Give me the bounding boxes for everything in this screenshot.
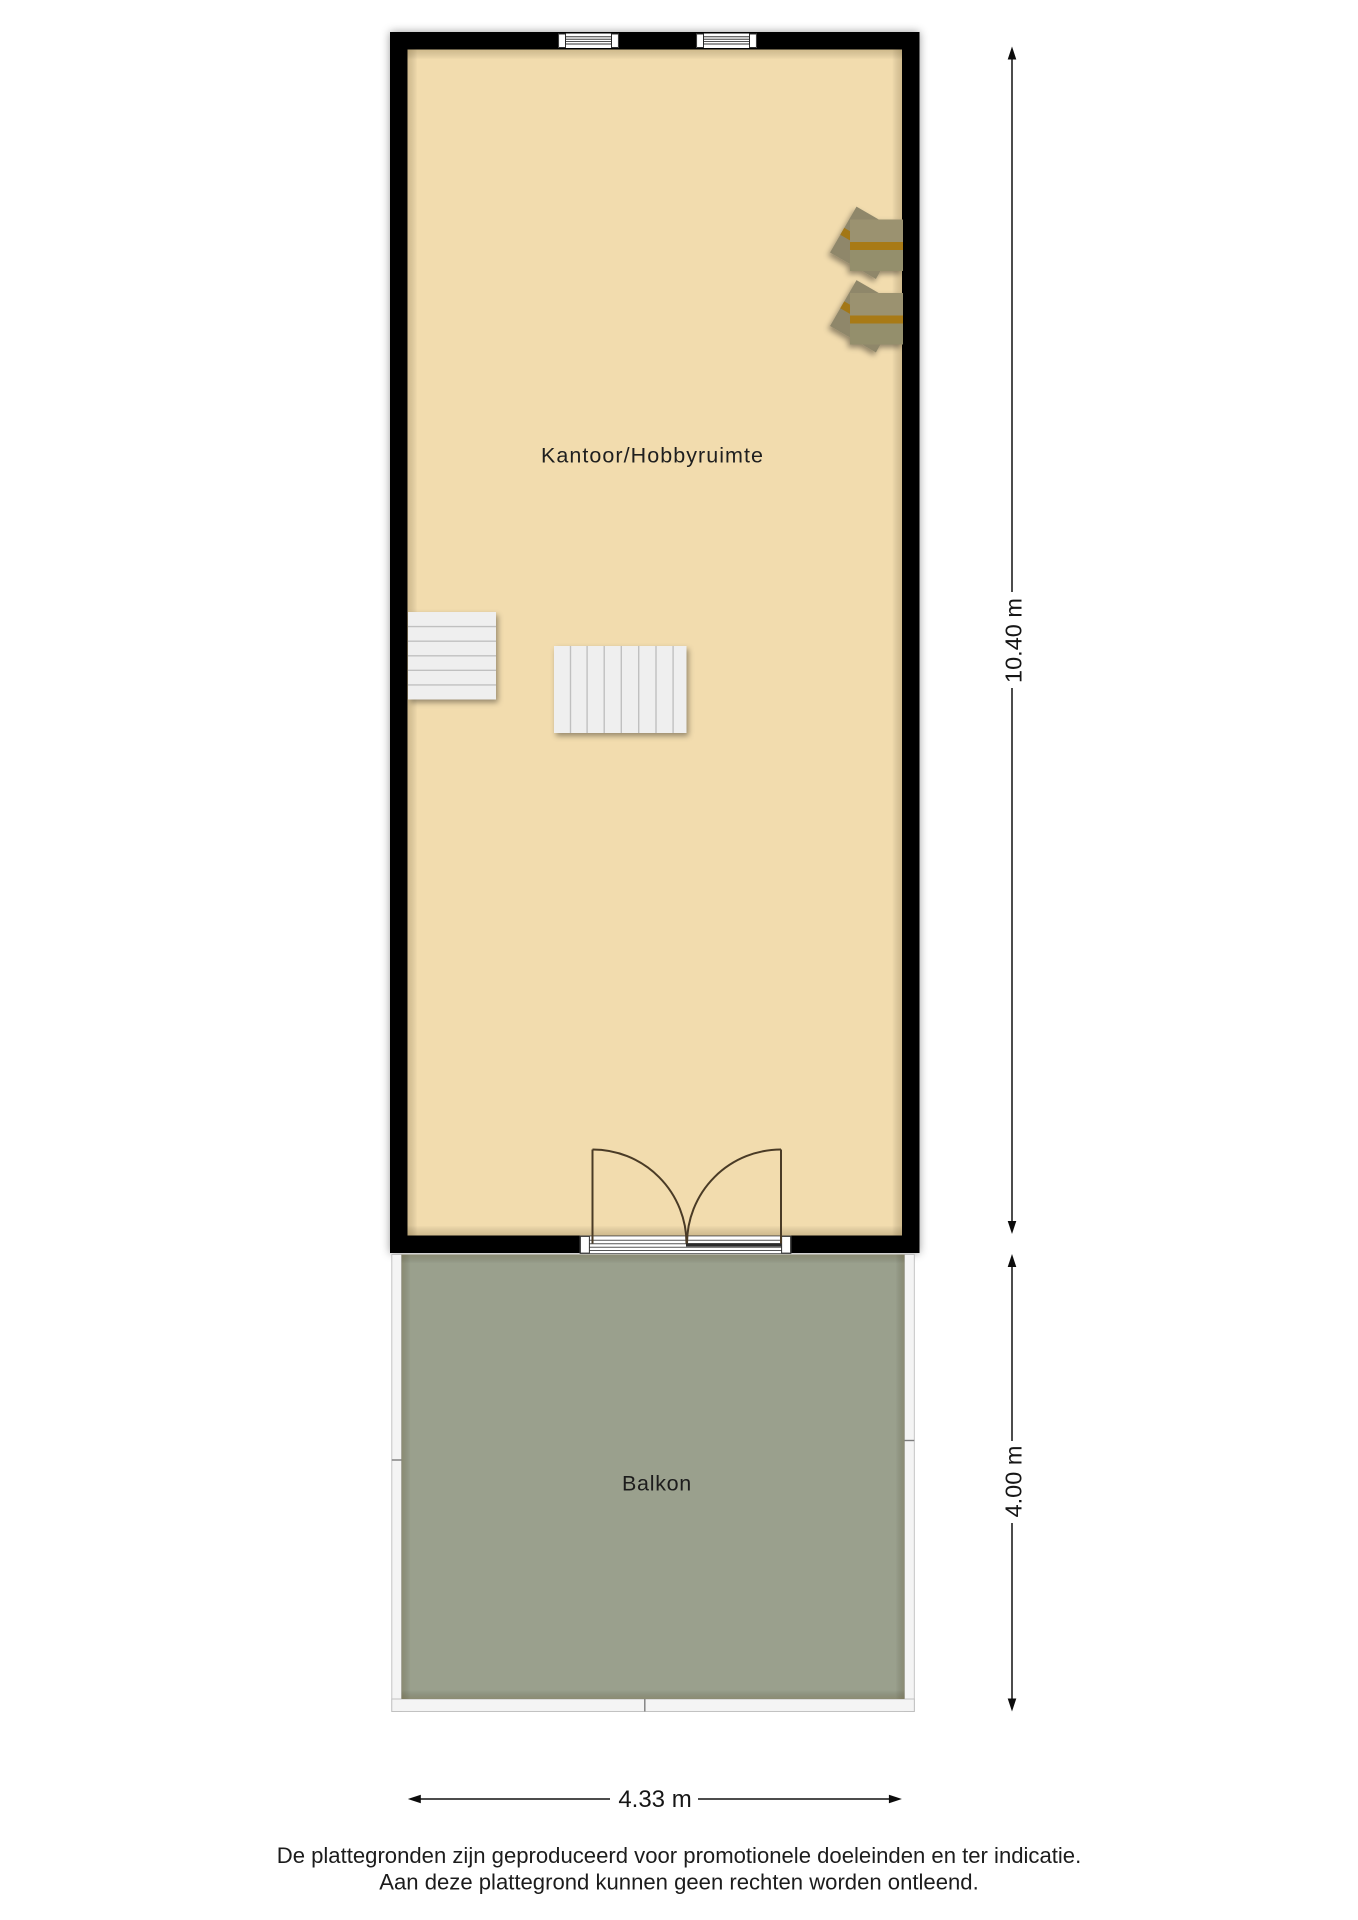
- svg-text:Aan deze plattegrond kunnen ge: Aan deze plattegrond kunnen geen rechten…: [379, 1870, 978, 1895]
- svg-text:Balkon: Balkon: [622, 1472, 692, 1496]
- svg-text:4.33 m: 4.33 m: [618, 1786, 691, 1813]
- svg-text:Kantoor/Hobbyruimte: Kantoor/Hobbyruimte: [541, 444, 764, 468]
- svg-text:10.40 m: 10.40 m: [1001, 598, 1027, 683]
- svg-text:4.00 m: 4.00 m: [1001, 1446, 1027, 1518]
- svg-text:De plattegronden zijn geproduc: De plattegronden zijn geproduceerd voor …: [277, 1843, 1082, 1868]
